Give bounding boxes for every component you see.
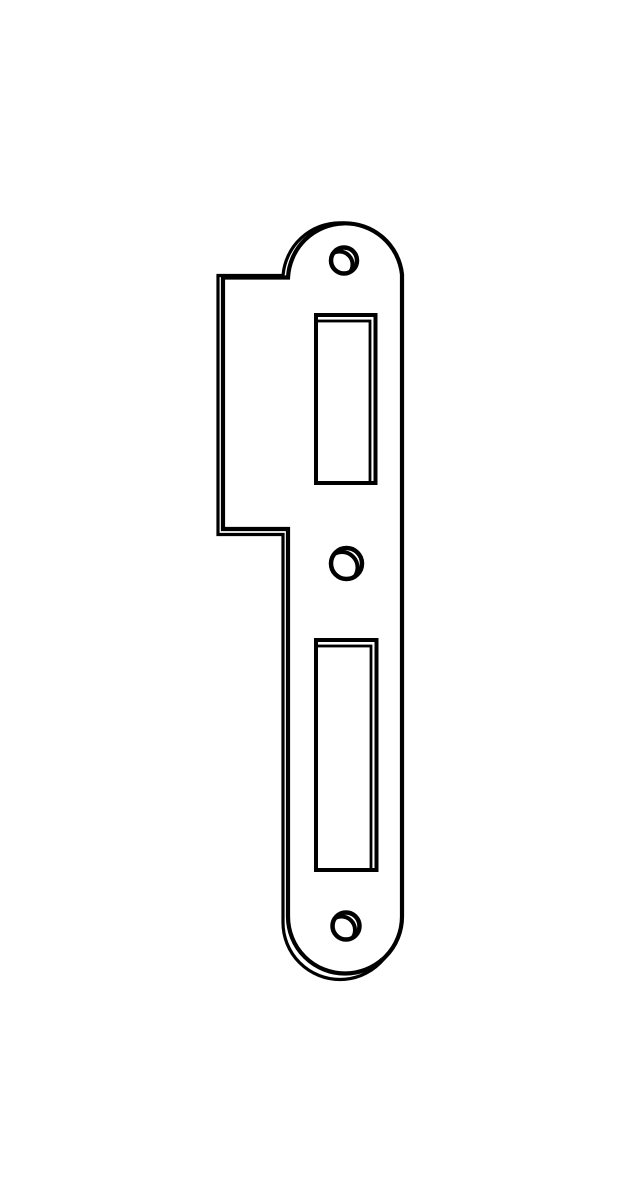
strike-plate-technical-drawing	[0, 0, 622, 1200]
page-background	[0, 0, 622, 1200]
latch-slot	[316, 315, 376, 483]
deadbolt-slot	[316, 640, 377, 870]
